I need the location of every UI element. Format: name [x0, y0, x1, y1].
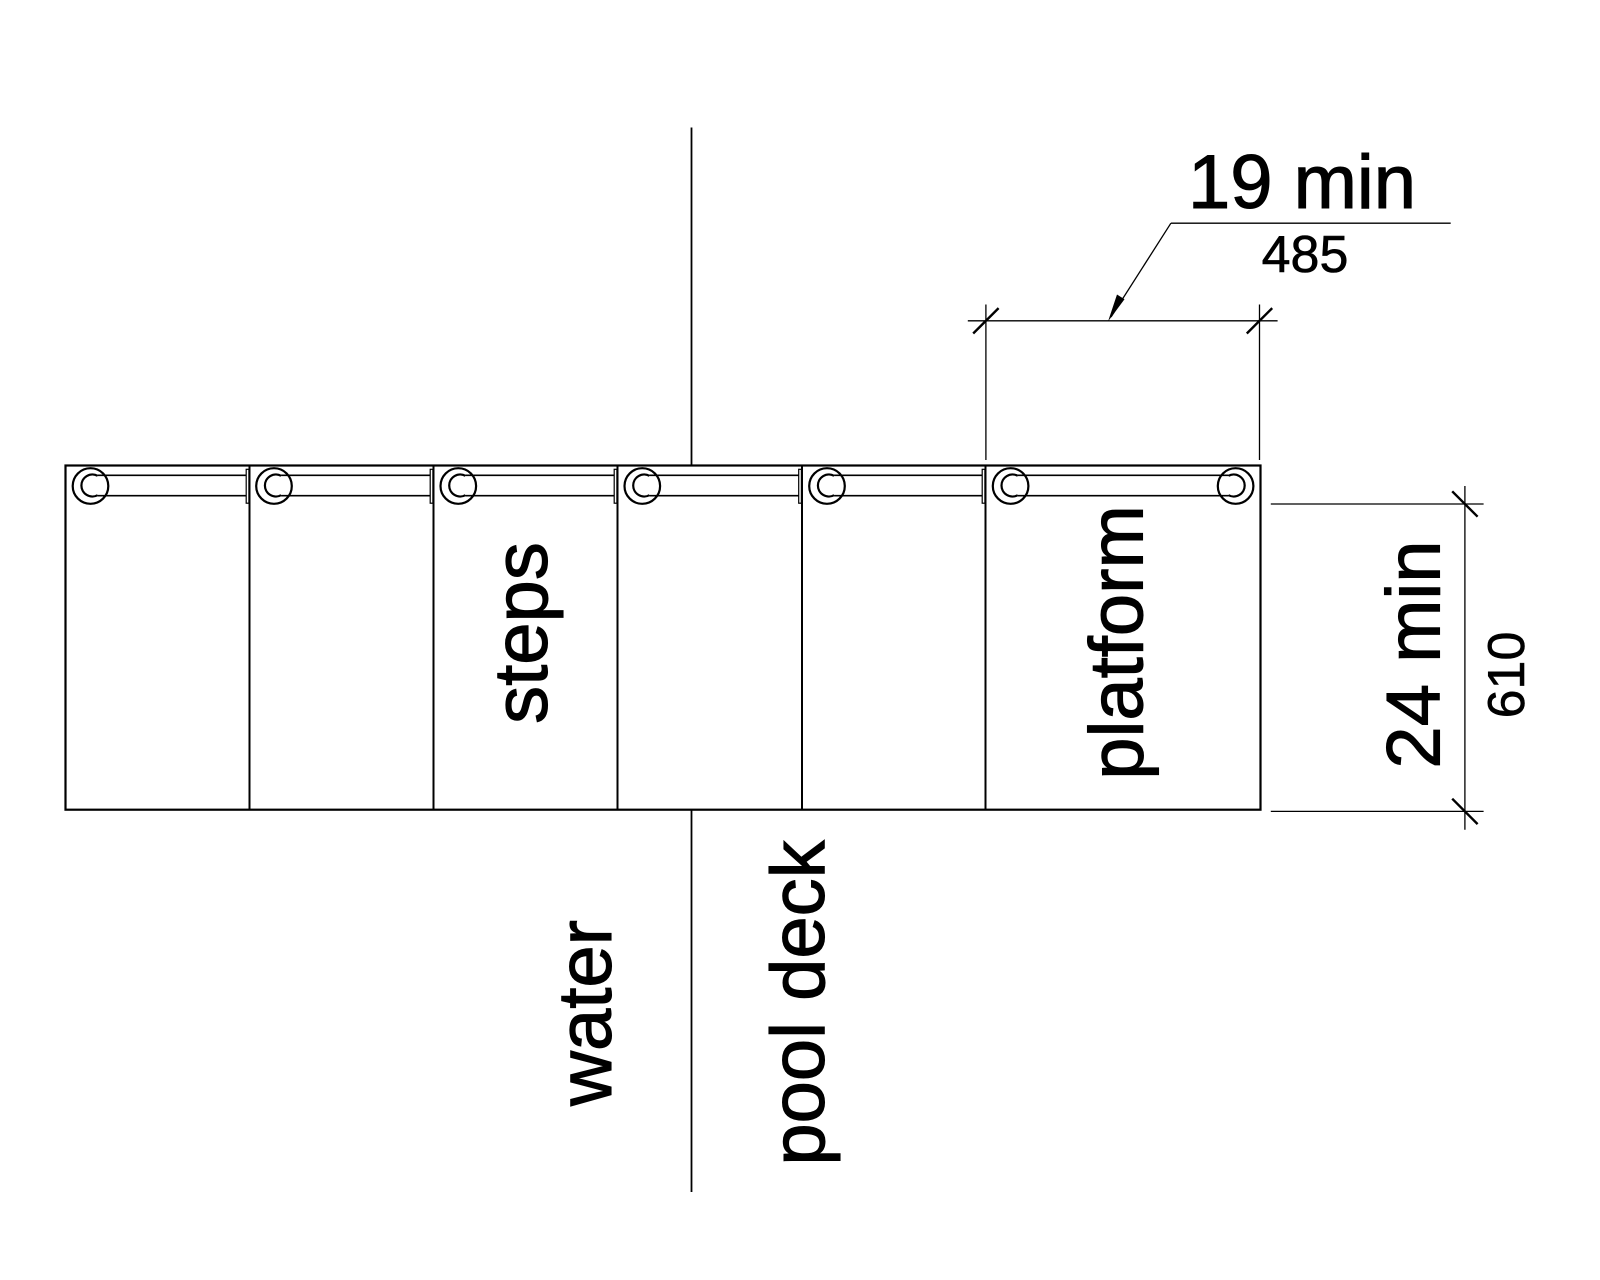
svg-text:485: 485	[1262, 226, 1349, 284]
svg-text:610: 610	[1478, 632, 1536, 719]
svg-text:pool deck: pool deck	[756, 839, 841, 1165]
svg-text:steps: steps	[479, 542, 564, 724]
svg-text:water: water	[543, 920, 628, 1107]
svg-text:19 min: 19 min	[1188, 140, 1416, 225]
svg-text:platform: platform	[1074, 505, 1159, 780]
svg-text:24 min: 24 min	[1372, 540, 1457, 768]
